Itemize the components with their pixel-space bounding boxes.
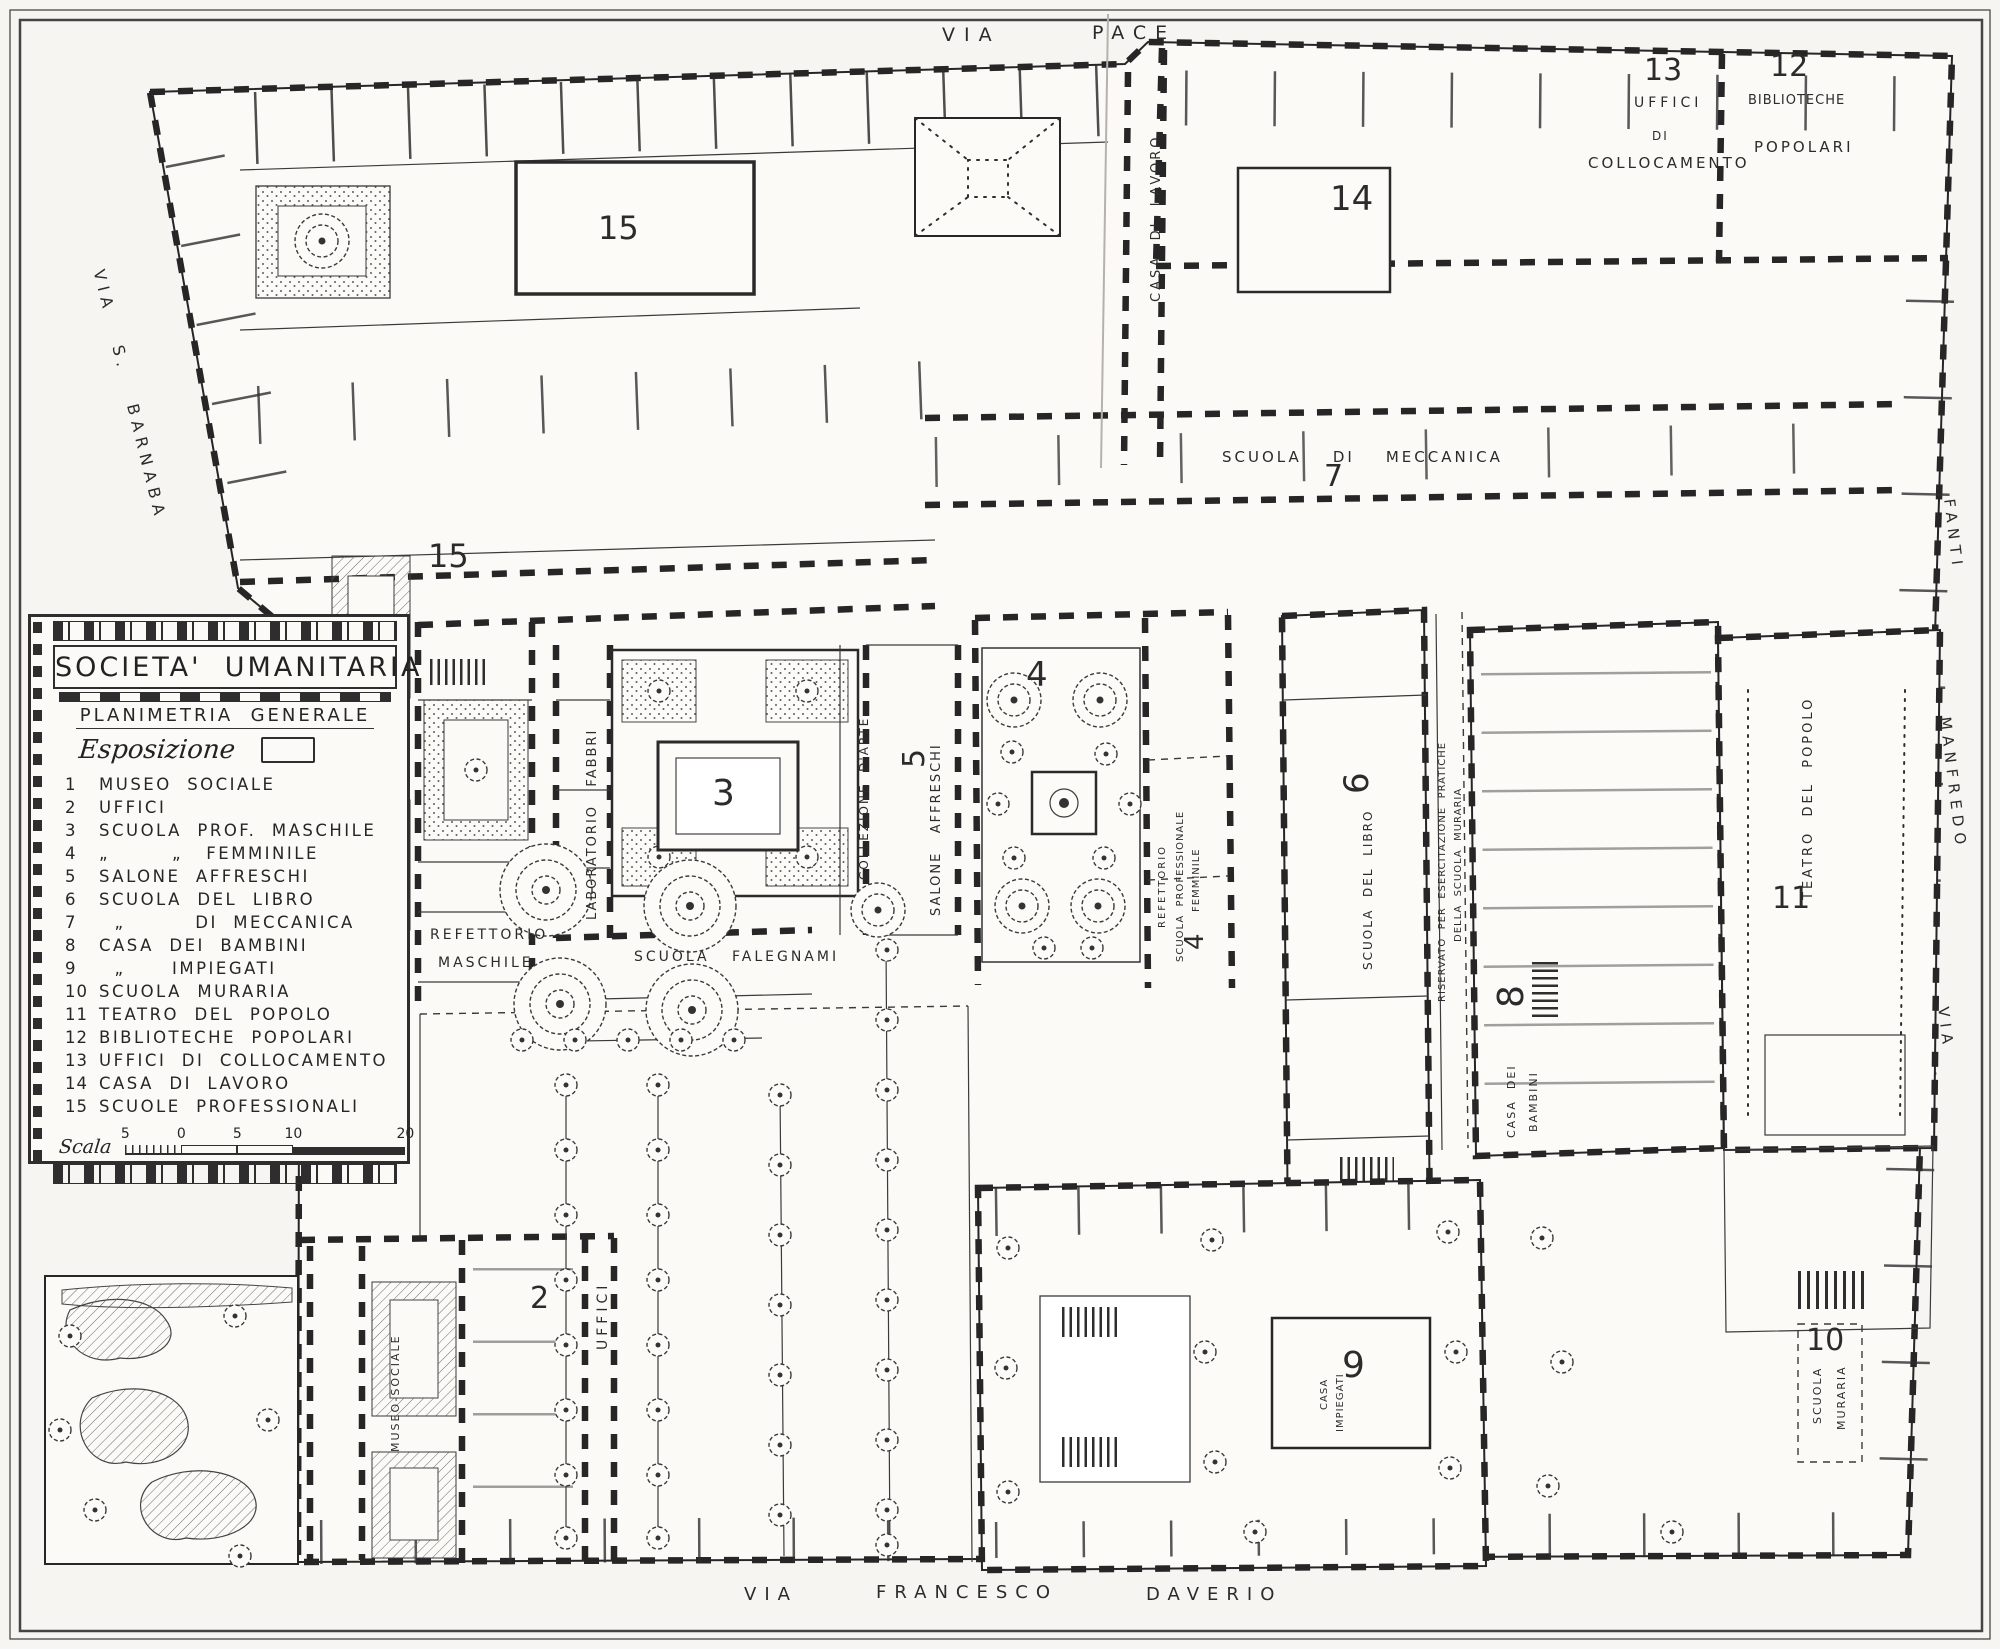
scale-tick: 5 [233, 1126, 242, 1142]
legend-item-label: UFFICI DI COLLOCAMENTO [99, 1051, 388, 1070]
legend-scale-bar: 5051020 [125, 1126, 397, 1160]
legend-item-number: 8 [53, 936, 99, 955]
legend-ornament-bottom [53, 1164, 397, 1184]
legend-item-9: 9 „ IMPIEGATI [53, 957, 397, 980]
legend-item-number: 9 [53, 959, 99, 978]
legend-esposizione-row: Esposizione [79, 733, 397, 767]
legend-item-label: CASA DEI BAMBINI [99, 936, 308, 955]
legend-item-label: UFFICI [99, 798, 166, 817]
legend-item-7: 7 „ DI MECCANICA [53, 911, 397, 934]
scuola-del-libro-block [1282, 610, 1430, 1238]
legend-item-number: 1 [53, 775, 99, 794]
legend-item-label: „ IMPIEGATI [99, 959, 277, 978]
legend-items: 1MUSEO SOCIALE2UFFICI3SCUOLA PROF. MASCH… [53, 773, 397, 1118]
legend-panel: SOCIETA' UMANITARIA PLANIMETRIA GENERALE… [28, 614, 410, 1164]
legend-ornament-top [53, 621, 397, 641]
scale-tick: 10 [284, 1126, 302, 1142]
legend-item-3: 3SCUOLA PROF. MASCHILE [53, 819, 397, 842]
legend-item-number: 13 [53, 1051, 99, 1070]
esposizione-area-swatch [261, 737, 315, 763]
legend-item-label: SCUOLA DEL LIBRO [99, 890, 315, 909]
legend-item-5: 5SALONE AFFRESCHI [53, 865, 397, 888]
legend-item-label: TEATRO DEL POPOLO [99, 1005, 332, 1024]
legend-item-2: 2UFFICI [53, 796, 397, 819]
legend-scale-label: Scala [58, 1136, 113, 1160]
legend-item-6: 6SCUOLA DEL LIBRO [53, 888, 397, 911]
casa-impiegati-block [978, 1180, 1486, 1570]
legend-item-number: 2 [53, 798, 99, 817]
legend-item-number: 14 [53, 1074, 99, 1093]
legend-item-number: 15 [53, 1097, 99, 1116]
legend-item-label: SCUOLA PROF. MASCHILE [99, 821, 376, 840]
legend-item-4: 4„ „ FEMMINILE [53, 842, 397, 865]
legend-item-label: SCUOLE PROFESSIONALI [99, 1097, 359, 1116]
legend-item-label: „ „ FEMMINILE [99, 844, 319, 863]
legend-item-number: 7 [53, 913, 99, 932]
legend-esposizione-label: Esposizione [77, 735, 236, 765]
legend-scale-ticks: 5051020 [125, 1126, 397, 1142]
scale-tick: 0 [177, 1126, 186, 1142]
legend-item-label: CASA DI LAVORO [99, 1074, 291, 1093]
legend-item-label: SCUOLA MURARIA [99, 982, 291, 1001]
legend-item-number: 3 [53, 821, 99, 840]
scale-tick: 5 [121, 1126, 130, 1142]
casa-bambini-block [1470, 622, 1724, 1156]
legend-item-label: MUSEO SOCIALE [99, 775, 275, 794]
legend-item-number: 5 [53, 867, 99, 886]
legend-item-14: 14CASA DI LAVORO [53, 1072, 397, 1095]
legend-item-1: 1MUSEO SOCIALE [53, 773, 397, 796]
legend-item-number: 6 [53, 890, 99, 909]
legend-item-13: 13UFFICI DI COLLOCAMENTO [53, 1049, 397, 1072]
legend-item-number: 10 [53, 982, 99, 1001]
legend-item-number: 4 [53, 844, 99, 863]
legend-item-label: „ DI MECCANICA [99, 913, 355, 932]
legend-scale: Scala 5051020 [59, 1126, 397, 1160]
courtyard-3 [612, 650, 858, 896]
legend-item-12: 12BIBLIOTECHE POPOLARI [53, 1026, 397, 1049]
legend-item-number: 11 [53, 1005, 99, 1024]
legend-item-label: SALONE AFFRESCHI [99, 867, 310, 886]
legend-title-box: SOCIETA' UMANITARIA [53, 645, 397, 689]
legend-item-15: 15SCUOLE PROFESSIONALI [53, 1095, 397, 1118]
legend-title: SOCIETA' UMANITARIA [55, 652, 422, 683]
legend-item-11: 11TEATRO DEL POPOLO [53, 1003, 397, 1026]
legend-item-10: 10SCUOLA MURARIA [53, 980, 397, 1003]
legend-title-underline [59, 692, 391, 702]
legend-scale-bar-segments [125, 1145, 405, 1155]
legend-subtitle: PLANIMETRIA GENERALE [76, 705, 375, 729]
legend-item-8: 8CASA DEI BAMBINI [53, 934, 397, 957]
legend-item-number: 12 [53, 1028, 99, 1047]
scale-tick: 20 [396, 1126, 414, 1142]
legend-item-label: BIBLIOTECHE POPOLARI [99, 1028, 354, 1047]
